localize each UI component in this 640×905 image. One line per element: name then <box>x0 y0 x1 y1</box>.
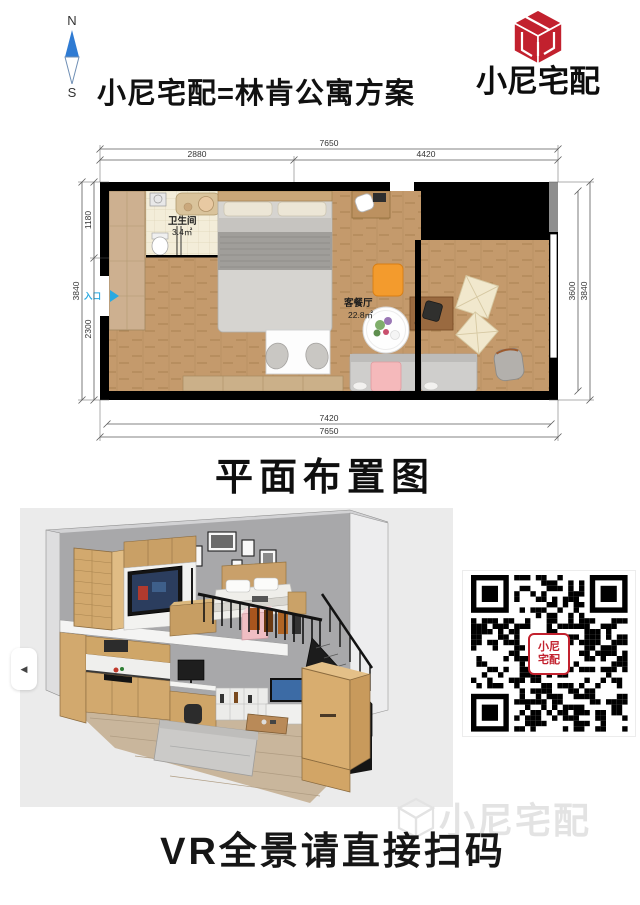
sofa-left <box>350 354 417 391</box>
monitor <box>178 660 204 680</box>
dim-left-lower: 2300 <box>83 319 93 338</box>
brand-logo: 小尼宅配 <box>468 8 608 98</box>
poster-page: N S 小尼宅配=林肯公寓方案 小尼宅配 <box>0 0 640 905</box>
dim-top-right: 4420 <box>417 149 436 159</box>
compass: N S <box>51 14 93 100</box>
entry-gap <box>100 276 109 316</box>
wood-chest <box>170 602 216 636</box>
room-3d-render <box>20 508 453 807</box>
dim-left-outer: 3840 <box>71 281 81 300</box>
bed <box>218 191 332 332</box>
kitchen <box>60 632 170 723</box>
dim-top-total: 7650 <box>320 138 339 148</box>
dim-left-upper: 1180 <box>83 211 93 230</box>
qr-code: 小尼 宅配 <box>471 575 628 732</box>
compass-south-label: S <box>51 86 93 100</box>
bathroom-name: 卫生间 <box>168 215 197 227</box>
dim-bottom-total: 7650 <box>320 426 339 436</box>
murphy-cabinet <box>302 662 370 792</box>
vr-cta-text: VR全景请直接扫码 <box>0 820 640 875</box>
brand-cube-icon <box>510 8 566 66</box>
floor-plan: 入口 卫生间 3.4㎡ 客餐厅 22.8㎡ <box>0 138 640 445</box>
dim-right-inner: 3600 <box>567 281 577 300</box>
wardrobe <box>109 191 145 330</box>
divider-wall <box>415 240 421 391</box>
tall-wardrobe <box>74 548 112 630</box>
right-window <box>550 234 557 358</box>
top-door-gap <box>390 182 414 191</box>
toilet <box>152 237 168 255</box>
pink-cushion <box>371 362 401 391</box>
desk-chair-3d <box>184 704 202 724</box>
work-desk <box>352 191 390 218</box>
page-title: 小尼宅配=林肯公寓方案 <box>97 70 415 112</box>
qr-center-logo: 小尼 宅配 <box>528 633 570 675</box>
dim-top-left: 2880 <box>188 149 207 159</box>
compass-north-label: N <box>51 14 93 28</box>
dim-bottom-inner: 7420 <box>320 413 339 423</box>
orange-ottoman <box>373 264 403 296</box>
living-name: 客餐厅 <box>343 297 373 309</box>
viewer-3d-panel: ◀ <box>20 508 453 807</box>
living-area: 22.8㎡ <box>348 310 374 320</box>
viewer-collapse-tab[interactable]: ◀ <box>11 648 37 690</box>
bathroom-area: 3.4㎡ <box>172 227 193 237</box>
basin <box>199 197 214 212</box>
entry-label: 入口 <box>83 291 101 301</box>
coffee-table-3d <box>246 714 288 734</box>
range-hood <box>104 640 128 652</box>
plan-caption: 平面布置图 <box>0 446 640 501</box>
white-desk <box>263 330 331 374</box>
sofa-right <box>421 354 477 391</box>
brand-logo-text: 小尼宅配 <box>468 66 608 98</box>
gray-chair <box>493 347 525 382</box>
loft-black-zone <box>421 191 549 240</box>
printer <box>373 193 386 202</box>
compass-needle-icon <box>61 30 83 84</box>
collapse-arrow-icon: ◀ <box>21 664 28 675</box>
low-cabinet <box>183 376 343 391</box>
dim-right-outer: 3840 <box>579 281 589 300</box>
qr-card: 小尼 宅配 <box>462 570 636 737</box>
